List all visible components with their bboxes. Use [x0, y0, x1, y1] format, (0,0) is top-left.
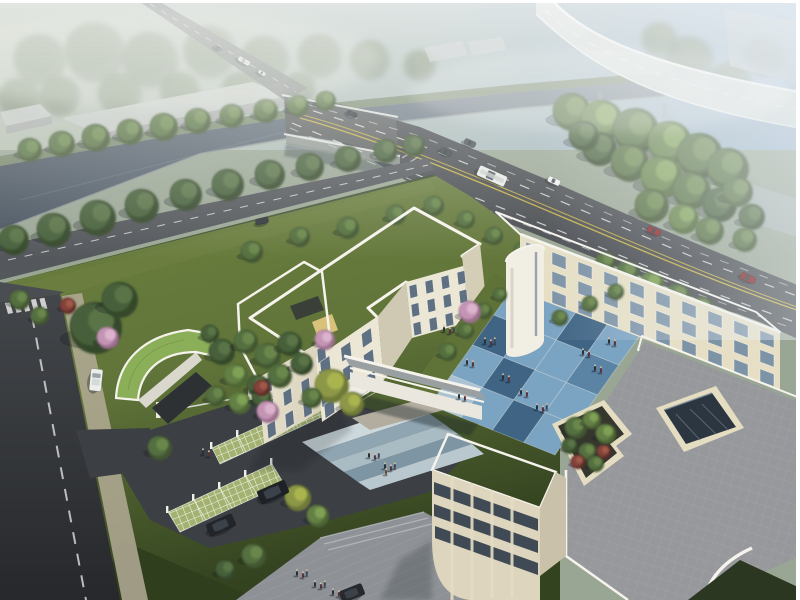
- rendering-canvas: Bird's-eye architectural rendering of a …: [0, 0, 800, 600]
- aerial-rendering: [0, 0, 800, 600]
